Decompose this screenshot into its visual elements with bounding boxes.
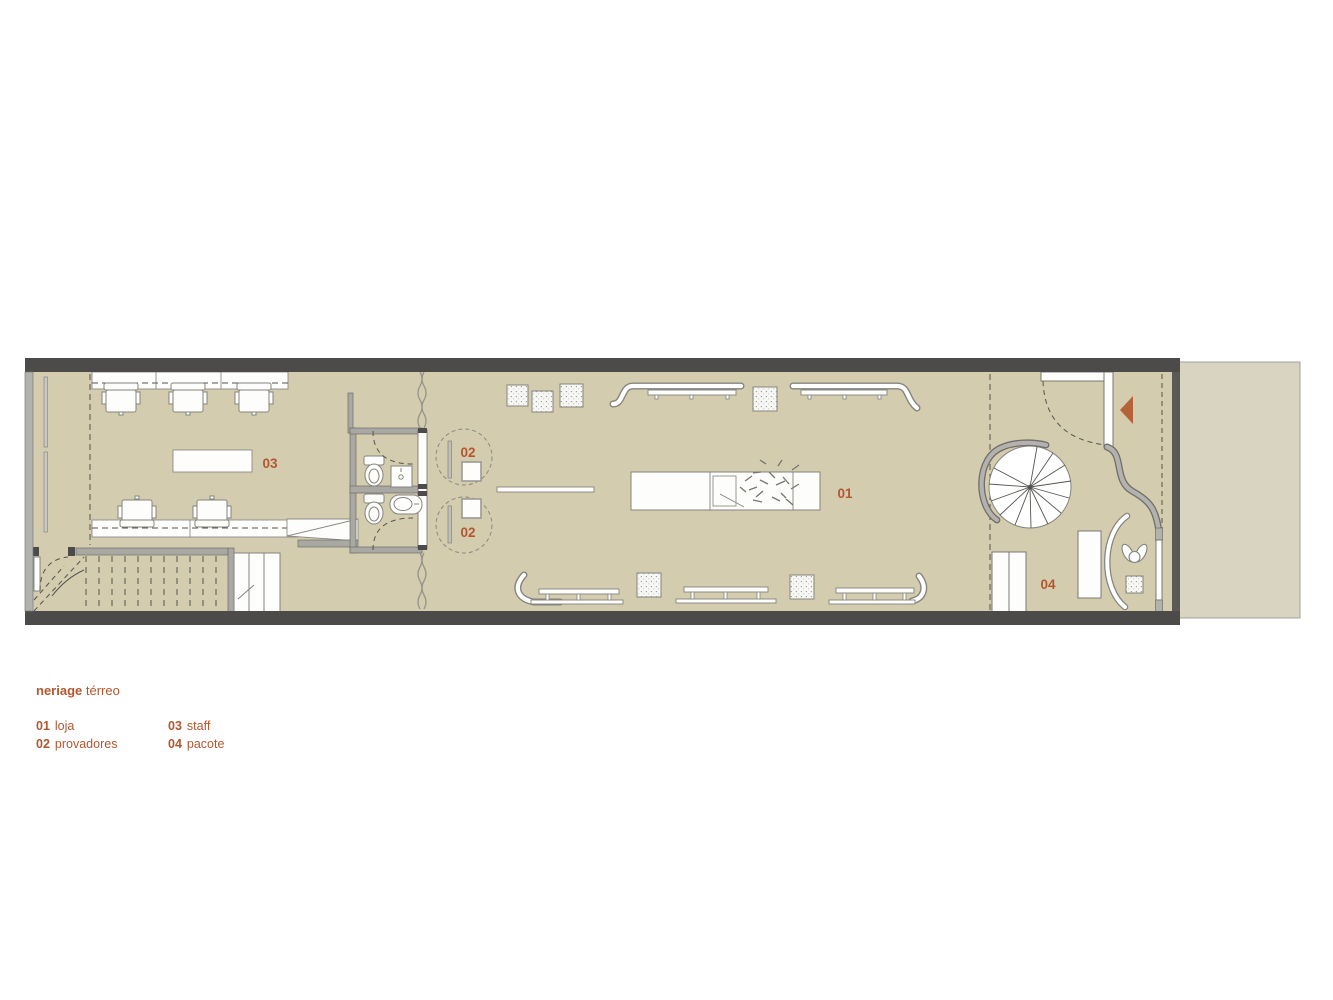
office-chair <box>118 496 156 527</box>
display-cube <box>753 387 777 411</box>
staff-table <box>173 450 252 472</box>
secondary-staircase <box>234 553 280 613</box>
door-jamb <box>33 547 39 556</box>
package-shelves <box>992 552 1026 613</box>
office-chair <box>193 496 231 527</box>
label-package: 04 <box>1040 577 1056 592</box>
floor-plan-svg: 03 02 02 01 04 <box>0 0 1333 1000</box>
label-staff: 03 <box>262 456 278 471</box>
label-fitting-top: 02 <box>460 445 475 460</box>
mirror <box>448 441 452 478</box>
glass-facade <box>1156 528 1163 613</box>
wall-bottom <box>25 611 1180 625</box>
wall-segment <box>76 548 228 555</box>
display-cube <box>790 575 814 599</box>
plan-caption: neriage térreo <box>36 683 120 698</box>
wall-left <box>25 372 33 611</box>
wall-shelf <box>44 377 48 447</box>
display-cube <box>1126 576 1143 593</box>
door-jamb <box>68 547 75 556</box>
exterior-sidewalk <box>1178 362 1300 618</box>
stool <box>462 499 481 518</box>
bathroom-partition <box>418 430 427 549</box>
toilet <box>364 456 384 486</box>
floor-plan-page: 03 02 02 01 04 neriage térreo 01loja 02p… <box>0 0 1333 1000</box>
display-cube <box>507 385 528 406</box>
office-chair <box>235 383 273 415</box>
floor-name: térreo <box>86 683 120 698</box>
office-chair <box>102 383 140 415</box>
toilet <box>364 494 384 524</box>
stool <box>462 462 481 481</box>
wall-segment <box>298 540 358 547</box>
wall-segment <box>228 548 234 613</box>
legend-item: 04pacote <box>168 735 224 753</box>
glass-panel <box>1104 372 1113 447</box>
brand-name: neriage <box>36 683 82 698</box>
legend-item: 02provadores <box>36 735 117 753</box>
display-cube <box>637 573 661 597</box>
wall-top <box>25 358 1180 372</box>
wall-right <box>1172 372 1180 611</box>
legend-column-left: 01loja 02provadores <box>36 717 117 753</box>
wall-shelf <box>497 487 594 492</box>
legend-item: 01loja <box>36 717 117 735</box>
sink <box>391 466 412 487</box>
mirror <box>448 506 452 543</box>
legend-column-right: 03staff 04pacote <box>168 717 224 753</box>
label-fitting-bottom: 02 <box>460 525 475 540</box>
label-store: 01 <box>837 486 853 501</box>
office-chair <box>169 383 207 415</box>
legend-item: 03staff <box>168 717 224 735</box>
display-cube <box>560 384 583 407</box>
reception-desk <box>1078 531 1101 598</box>
display-cube <box>532 391 553 412</box>
wall-shelf <box>44 452 48 532</box>
door-leaf <box>34 557 40 591</box>
accessible-basin <box>390 495 422 514</box>
wall-segment <box>348 393 353 433</box>
